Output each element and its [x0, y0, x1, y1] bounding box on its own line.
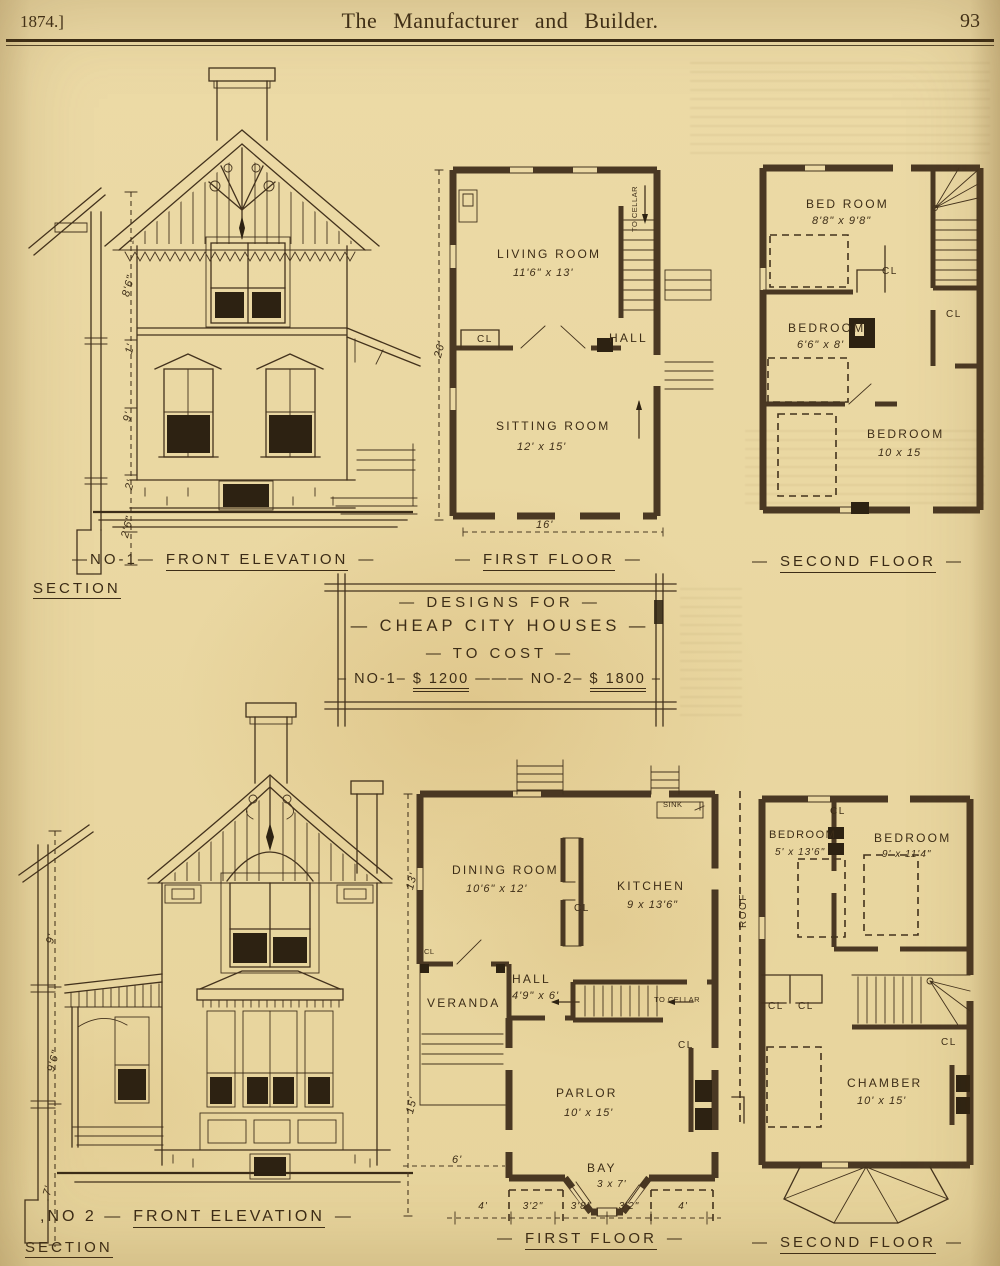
p2f-hall-dims: 4'9" x 6' — [512, 990, 559, 1002]
masthead-page-number: 93 — [960, 10, 980, 33]
elevation-no2-drawing — [15, 695, 425, 1215]
p1s-bedroom1-dims: 8'8" x 9'8" — [812, 215, 871, 227]
p2s-closet-right-label: CL — [941, 1037, 957, 1048]
house2-veranda — [65, 974, 163, 1147]
p1s-bedroom3-dims: 10 x 15 — [878, 447, 921, 459]
elevation2-caption-dash: — — [335, 1208, 354, 1225]
p2f-bottom-dim-5: 4' — [678, 1201, 687, 1212]
plan2f-caption: —FIRST FLOOR— — [497, 1230, 685, 1247]
plan1f-entry-steps — [665, 270, 713, 389]
parlor-dims: 10' x 15' — [564, 1107, 613, 1119]
house2-second-floor-window — [221, 873, 319, 973]
plan2s-bay-roof — [784, 1167, 948, 1223]
house1-roof-gable — [105, 130, 379, 261]
living-room-dims: 11'6" x 13' — [513, 267, 574, 279]
plan2f-caption-dash-l: — — [497, 1230, 515, 1247]
plan2s-caption-dash-l: — — [752, 1234, 770, 1251]
p1s-bedroom1-label: BED ROOM — [806, 197, 889, 211]
plan2s-center-wall — [828, 799, 970, 949]
plan1f-width-dim: 16' — [536, 519, 553, 531]
house1-second-floor-window — [206, 237, 290, 327]
plan1f-hall-label: HALL — [609, 331, 648, 345]
kitchen-dims: 9 x 13'6" — [627, 899, 678, 911]
p2s-closet-top-label: CL — [830, 806, 846, 817]
plan1s-caption-main: SECOND FLOOR — [780, 553, 936, 573]
p2s-bedroom1-dims: 5' x 13'6" — [775, 847, 825, 858]
elevation-no1-drawing — [25, 60, 430, 560]
p2s-closet-b-label: CL — [798, 1001, 814, 1012]
p2f-bottom-dim-3: 3'8" — [571, 1201, 592, 1212]
p2f-bottom-dim-1: 4' — [478, 1201, 487, 1212]
plan1f-closet-fixture — [459, 190, 477, 222]
title-box-line1: — DESIGNS FOR — — [330, 594, 670, 611]
plan1f-closet-label: CL — [477, 334, 493, 345]
elevation1-caption-no: —NO-1— — [72, 551, 156, 568]
parlor-label: PARLOR — [556, 1086, 618, 1100]
dining-room-dims: 10'6" x 12' — [466, 883, 527, 895]
title-box-cost-line: – NO-1– $ 1200 ——— NO-2– $ 1800 – — [330, 671, 670, 687]
masthead-title: The Manufacturer and Builder. — [0, 8, 1000, 34]
elevation1-caption: —NO-1—FRONT ELEVATION— — [72, 551, 376, 568]
masthead-rule-thick — [6, 39, 994, 42]
title-box-line3: — TO COST — — [330, 645, 670, 662]
dining-room-label: DINING ROOM — [452, 863, 559, 877]
plan1f-to-cellar-label: TO CELLAR — [630, 186, 639, 232]
house2-bay-window — [197, 971, 343, 1179]
p2f-closet-dining-label: CL — [424, 947, 435, 956]
house2-body — [155, 883, 390, 1167]
plan2-first-floor-drawing — [395, 750, 740, 1230]
p2f-bottom-dim-2: 3'2" — [523, 1201, 544, 1212]
p1s-bedroom3-label: BEDROOM — [867, 427, 944, 441]
section-no2-linework — [19, 825, 93, 1247]
plan1s-bed-outlines — [768, 235, 848, 496]
house1-base — [130, 480, 355, 510]
house1-side-porch — [331, 328, 420, 514]
section1-caption: SECTION — [33, 580, 121, 597]
plan1s-caption-dash-r: — — [946, 553, 964, 570]
elevation1-caption-main: FRONT ELEVATION — [166, 551, 349, 571]
plan1f-caption-main: FIRST FLOOR — [483, 551, 615, 571]
p2f-bottom-dim-4: 3'2" — [619, 1201, 640, 1212]
section2-caption: SECTION — [25, 1239, 113, 1256]
title-box-line2: — CHEAP CITY HOUSES — — [330, 617, 670, 636]
house1-first-floor-windows — [155, 354, 323, 457]
plan2s-hall-closets — [762, 975, 822, 1003]
plan1f-caption-dash-l: — — [455, 551, 473, 568]
chamber-dims: 10' x 15' — [857, 1095, 906, 1107]
plan2f-center-closet — [563, 838, 581, 946]
plan1f-caption: —FIRST FLOOR— — [455, 551, 643, 568]
plan2s-stairs — [852, 975, 970, 1027]
sitting-room-dims: 12' x 15' — [517, 441, 566, 453]
plan2f-caption-main: FIRST FLOOR — [525, 1230, 657, 1250]
p2s-bedroom2-dims: 9' x 11'4" — [882, 849, 931, 860]
plan2f-caption-dash-r: — — [667, 1230, 685, 1247]
plan1f-dimensions — [435, 170, 663, 536]
bleedthrough-text-mid-right — [680, 588, 742, 718]
house2-side-chimney — [351, 781, 383, 873]
p2f-closet-right-label: CL — [678, 1040, 694, 1051]
masthead-rule-thin — [6, 45, 994, 46]
chamber-label: CHAMBER — [847, 1076, 922, 1090]
p2f-to-cellar-label: TO CELLAR — [654, 995, 700, 1004]
plan1f-caption-dash-r: — — [625, 551, 643, 568]
bay-label: BAY — [587, 1161, 617, 1175]
sitting-room-label: SITTING ROOM — [496, 419, 610, 433]
plan1s-caption-dash-l: — — [752, 553, 770, 570]
p2f-hall-label: HALL — [512, 972, 551, 986]
p2s-closet-a-label: CL — [768, 1001, 784, 1012]
cost-no1-amount: $ 1200 — [413, 671, 469, 692]
sink-label: SINK — [663, 800, 683, 809]
bleedthrough-text-top-right — [690, 62, 990, 157]
veranda-label: VERANDA — [427, 996, 500, 1010]
elevation2-caption: ,NO 2 —FRONT ELEVATION— — [40, 1208, 354, 1226]
section1-caption-text: SECTION — [33, 580, 121, 599]
plan1-first-floor-drawing — [425, 150, 740, 550]
elevation2-caption-main: FRONT ELEVATION — [133, 1208, 325, 1228]
elevation1-caption-dash: — — [358, 551, 376, 568]
plan2s-caption-main: SECOND FLOOR — [780, 1234, 936, 1254]
magazine-page: 1874.] The Manufacturer and Builder. 93 — [0, 0, 1000, 1266]
cost-separator: ——— — [475, 671, 525, 687]
cost-no2-amount: $ 1800 — [590, 671, 646, 692]
plan1s-stairs — [933, 168, 981, 366]
p1s-bedroom2-dims: 6'6" x 8' — [797, 339, 844, 351]
cost-no1-label: – NO-1– — [338, 671, 407, 687]
plan2s-caption-dash-r: — — [946, 1234, 964, 1251]
plan2f-veranda — [420, 964, 505, 1105]
plan2f-right-closet — [691, 1048, 712, 1132]
cost-end-dash: – — [652, 671, 662, 687]
plan2s-roof-edge — [732, 791, 744, 1123]
section-no1-linework — [29, 188, 137, 574]
elevation2-caption-no: ,NO 2 — — [40, 1208, 123, 1225]
p1s-bedroom2-label: BEDROOM — [788, 321, 865, 335]
cost-no2-label: NO-2– — [531, 671, 584, 687]
plan2f-stoops — [517, 760, 679, 794]
plan1s-caption: —SECOND FLOOR— — [752, 553, 964, 570]
house2-ground — [57, 1173, 413, 1182]
kitchen-label: KITCHEN — [617, 879, 685, 893]
p1s-closet1-label: CL — [882, 266, 898, 277]
house2-chimney — [246, 703, 296, 783]
section2-caption-text: SECTION — [25, 1239, 113, 1258]
p2f-veranda-dim: 6' — [452, 1154, 462, 1166]
bay-dims: 3 x 7' — [597, 1179, 627, 1190]
plan2s-caption: —SECOND FLOOR— — [752, 1234, 964, 1251]
roof-label: ROOF — [738, 893, 749, 928]
p2s-bedroom2-label: BEDROOM — [874, 831, 951, 845]
living-room-label: LIVING ROOM — [497, 247, 601, 261]
p1s-closet2-label: CL — [946, 309, 962, 320]
p2s-bedroom1-label: BEDROOM — [769, 829, 836, 841]
p2f-closet-center-label: CL — [574, 903, 590, 914]
